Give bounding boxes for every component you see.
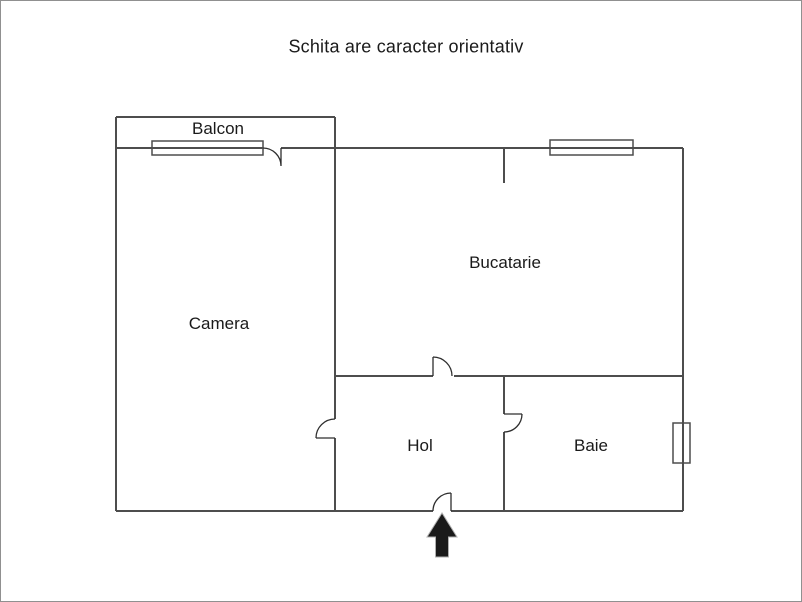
entrance-door-arc <box>433 493 451 511</box>
room-label-baie: Baie <box>574 436 608 456</box>
room-label-balcon: Balcon <box>192 119 244 139</box>
room-label-camera: Camera <box>189 314 249 334</box>
entrance-arrow-icon <box>427 513 457 557</box>
floorplan-canvas: Schita are caracter orientativ Balcon Ca… <box>0 0 802 602</box>
baie-door-arc <box>504 414 522 432</box>
balcon-door-arc <box>263 148 281 166</box>
baie-window <box>673 423 690 463</box>
bucatarie-door-arc <box>433 357 452 376</box>
room-label-hol: Hol <box>407 436 433 456</box>
camera-door-arc <box>316 419 335 438</box>
room-label-bucatarie: Bucatarie <box>469 253 541 273</box>
floorplan-drawing <box>1 1 802 602</box>
